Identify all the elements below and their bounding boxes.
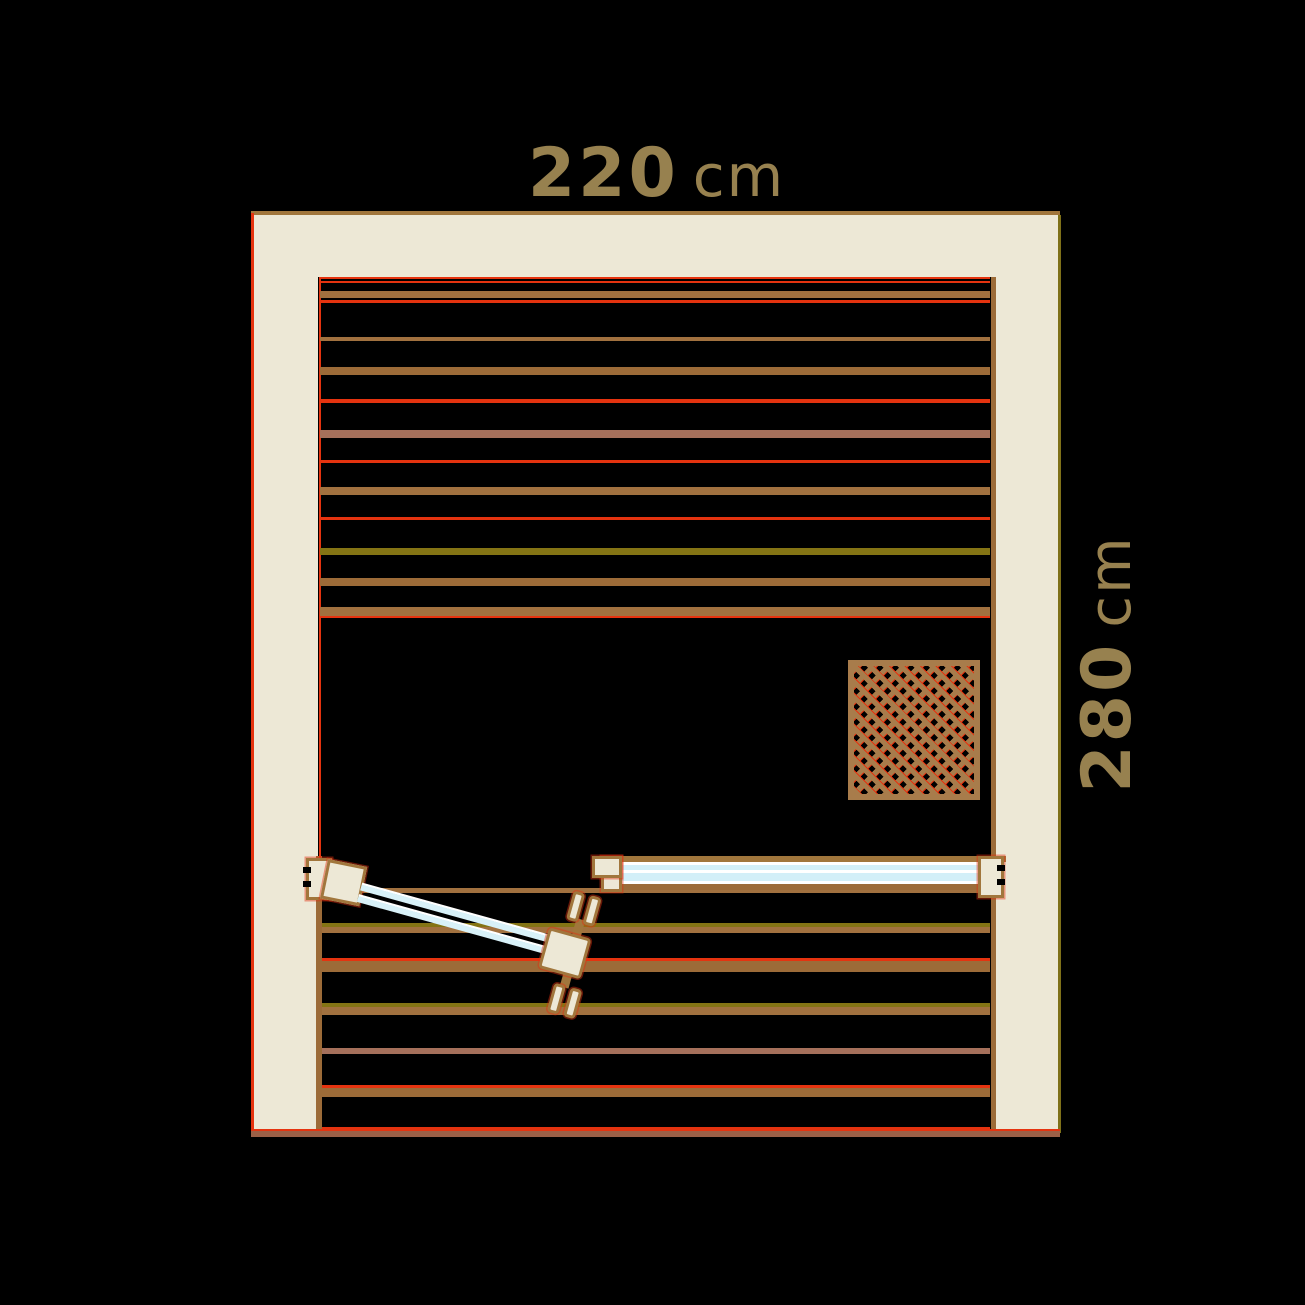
slat-line [320, 300, 990, 303]
slat-line [320, 399, 990, 403]
slat-line [320, 548, 990, 555]
door-handle-bar [566, 890, 586, 922]
width-unit: cm [693, 142, 785, 210]
height-dimension-label: 280cm [1074, 535, 1142, 792]
slat-line [320, 517, 990, 520]
fixed-glass-pane [622, 862, 978, 884]
heater-lattice [848, 660, 980, 800]
sauna-floorplan-diagram: 220cm 280cm [0, 0, 1305, 1305]
wall-right [994, 215, 1058, 1131]
slat-line [322, 961, 990, 972]
jamb-notch [997, 879, 1005, 885]
slat-line [322, 1127, 990, 1130]
height-value: 280 [1068, 642, 1147, 793]
slat-line [322, 1088, 990, 1097]
fixed-glass-bottom-rail [620, 884, 1004, 890]
slat-line [320, 430, 990, 438]
slat-line [320, 281, 990, 283]
wall-right-inner-edge [991, 277, 996, 1131]
interior-left-outline [319, 277, 321, 858]
door-right-jamb [978, 856, 1004, 898]
slat-line [320, 337, 990, 341]
width-dimension-label: 220cm [253, 140, 1060, 208]
wall-top [254, 215, 1058, 277]
slat-line [322, 1007, 990, 1015]
base-edge [251, 1131, 1060, 1137]
jamb-notch [997, 865, 1005, 871]
wall-left [254, 215, 318, 1131]
door-glass-pane [357, 894, 546, 954]
jamb-notch [303, 867, 311, 873]
slat-line [320, 616, 990, 618]
slat-line [322, 1048, 990, 1054]
door-leaf-open [317, 861, 622, 999]
door-mid-jamb [592, 856, 622, 878]
door-stile-block [538, 927, 592, 979]
slat-line [320, 460, 990, 463]
slat-line [320, 578, 990, 586]
slat-line [320, 487, 990, 495]
jamb-notch [303, 881, 311, 887]
height-unit: cm [1076, 535, 1144, 627]
slat-line [320, 291, 990, 298]
width-value: 220 [528, 134, 679, 213]
slat-line [320, 277, 990, 279]
slat-line [320, 367, 990, 375]
